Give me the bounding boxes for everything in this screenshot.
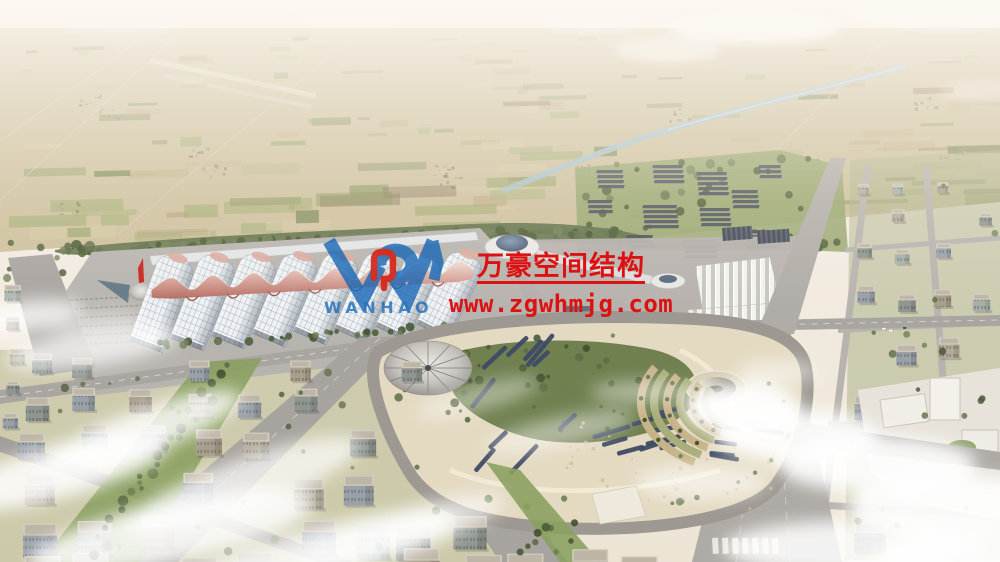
- aerial-render: WANHAO 万豪空间结构 www.zgwhmjg.com: [0, 0, 1000, 562]
- scene-svg: [0, 0, 1000, 562]
- atmospheric-haze: [0, 0, 1000, 562]
